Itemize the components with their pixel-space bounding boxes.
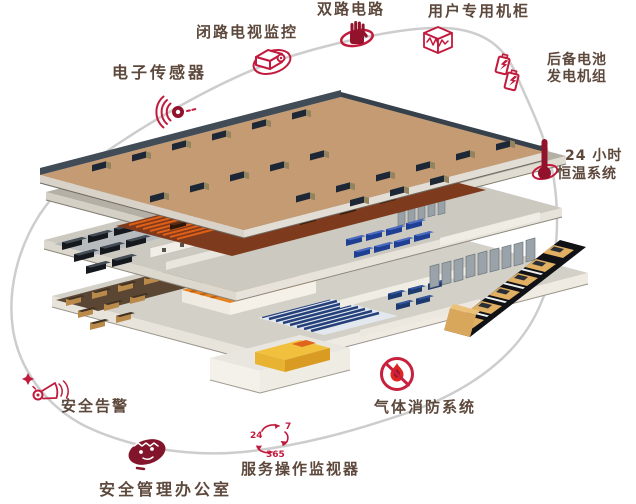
security-guard-icon <box>125 435 169 470</box>
hand-icon <box>340 21 374 49</box>
label-temperature-line1: 24 小时 <box>565 148 622 165</box>
label-cctv: 闭路电视监控 <box>196 24 298 41</box>
monitor-number-365: 365 <box>266 450 285 460</box>
label-temperature-line2: 恒温系统 <box>557 166 617 183</box>
label-monitor: 服务操作监视器 <box>241 461 360 478</box>
building-illustration <box>40 90 588 393</box>
label-office: 安全管理办公室 <box>99 481 232 498</box>
label-backup-power-line2: 发电机组 <box>547 69 607 86</box>
label-cabinet: 用户专用机柜 <box>428 3 530 20</box>
no-fire-icon <box>382 359 413 390</box>
diagram-canvas: 24 7 365 <box>0 0 636 504</box>
monitor-number-24: 24 <box>250 431 263 441</box>
monitor-number-7: 7 <box>285 422 291 432</box>
label-fire: 气体消防系统 <box>374 399 476 416</box>
rack-cabinet-icon <box>424 27 452 53</box>
label-dual-power: 双路电路 <box>317 1 385 18</box>
datacenter-diagram: 24 7 365 闭路电视监控 电子传感器 双路电路 用户专用机柜 后备电池 发… <box>0 0 636 504</box>
battery-icon <box>495 53 519 90</box>
cctv-camera-icon <box>251 46 294 79</box>
label-backup-power-line1: 后备电池 <box>547 52 607 69</box>
label-sensor: 电子传感器 <box>112 64 207 81</box>
label-alarm: 安全告警 <box>61 398 129 415</box>
cycle-24-7-365-icon: 24 7 365 <box>250 422 291 460</box>
